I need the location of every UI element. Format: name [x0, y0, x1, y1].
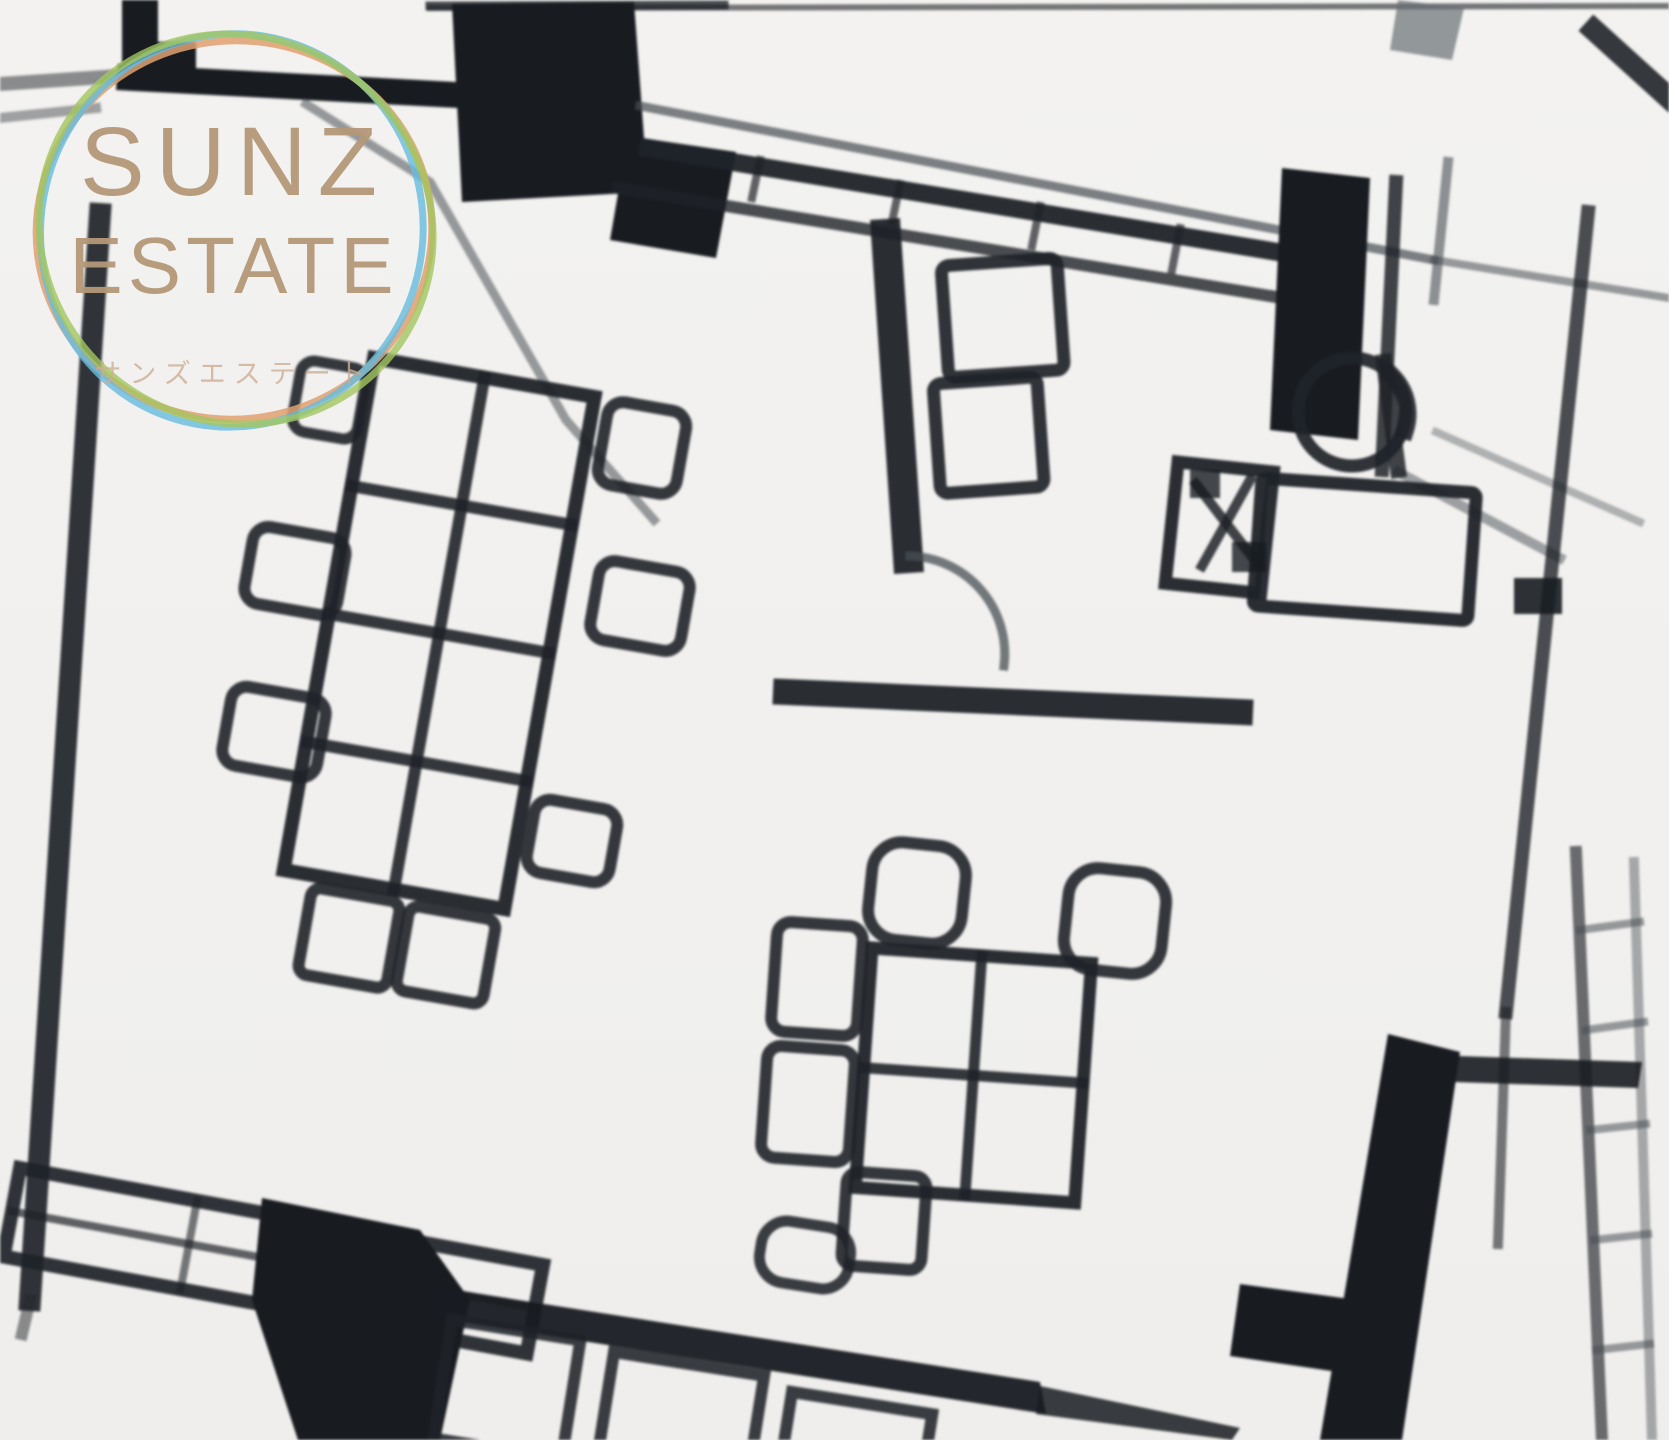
wall-pillar-top — [452, 2, 648, 202]
meeting-table-chairs — [220, 359, 692, 1005]
left-faint-band-1 — [0, 76, 120, 84]
hatch-rung-5 — [1596, 1344, 1650, 1350]
chair — [297, 887, 401, 989]
sofa-cushion-1 — [941, 258, 1065, 378]
thick-wall-branch — [1454, 1056, 1642, 1088]
diagonal-wall-band-2 — [1036, 1386, 1240, 1440]
chair — [595, 400, 688, 497]
wall-pillar-right — [1270, 168, 1370, 440]
wall-band-topleft — [116, 64, 458, 108]
small-table-divider-h — [864, 1068, 1083, 1083]
left-wall — [30, 214, 100, 1300]
chair — [760, 1045, 856, 1163]
sofa-cushion-2 — [933, 377, 1044, 494]
round-top-chair — [1061, 865, 1169, 977]
small-table — [855, 948, 1091, 1203]
hatch-wall-b — [1634, 862, 1652, 1440]
floorplan-image: SUNZ ESTATE サンズエステート — [0, 0, 1669, 1440]
floorplan-drawing — [0, 0, 1669, 1440]
corner-mark-dark — [1594, 30, 1669, 98]
chair — [290, 359, 368, 441]
chair — [770, 921, 863, 1037]
room-bottom-wall — [786, 692, 1240, 712]
left-wall-fade — [22, 1300, 30, 1334]
equipment-blob-1 — [1190, 470, 1220, 498]
room-left-wall — [886, 234, 908, 558]
equipment-blob-2 — [1232, 542, 1266, 572]
corridor-wall-upper — [648, 148, 1290, 254]
right-outer-wall-low — [1498, 1012, 1506, 1244]
round-top-chair — [865, 839, 969, 946]
chair — [524, 797, 620, 884]
hatch-rung-1 — [1580, 922, 1640, 930]
bottom-walls — [252, 1198, 1240, 1440]
corridor-line-thin-2 — [1434, 260, 1669, 298]
door-swing-arc — [910, 556, 1005, 666]
left-faint-band-2 — [0, 108, 96, 118]
pillar-right-edge-2 — [1434, 162, 1448, 300]
right-wall-knot — [1514, 578, 1562, 614]
chair — [588, 559, 692, 654]
small-table-chairs — [760, 839, 1169, 1270]
bottom-table — [781, 1392, 932, 1440]
chair — [395, 905, 497, 1005]
corner-mark-gray — [1390, 0, 1464, 60]
hatch-rung-4 — [1594, 1234, 1648, 1240]
